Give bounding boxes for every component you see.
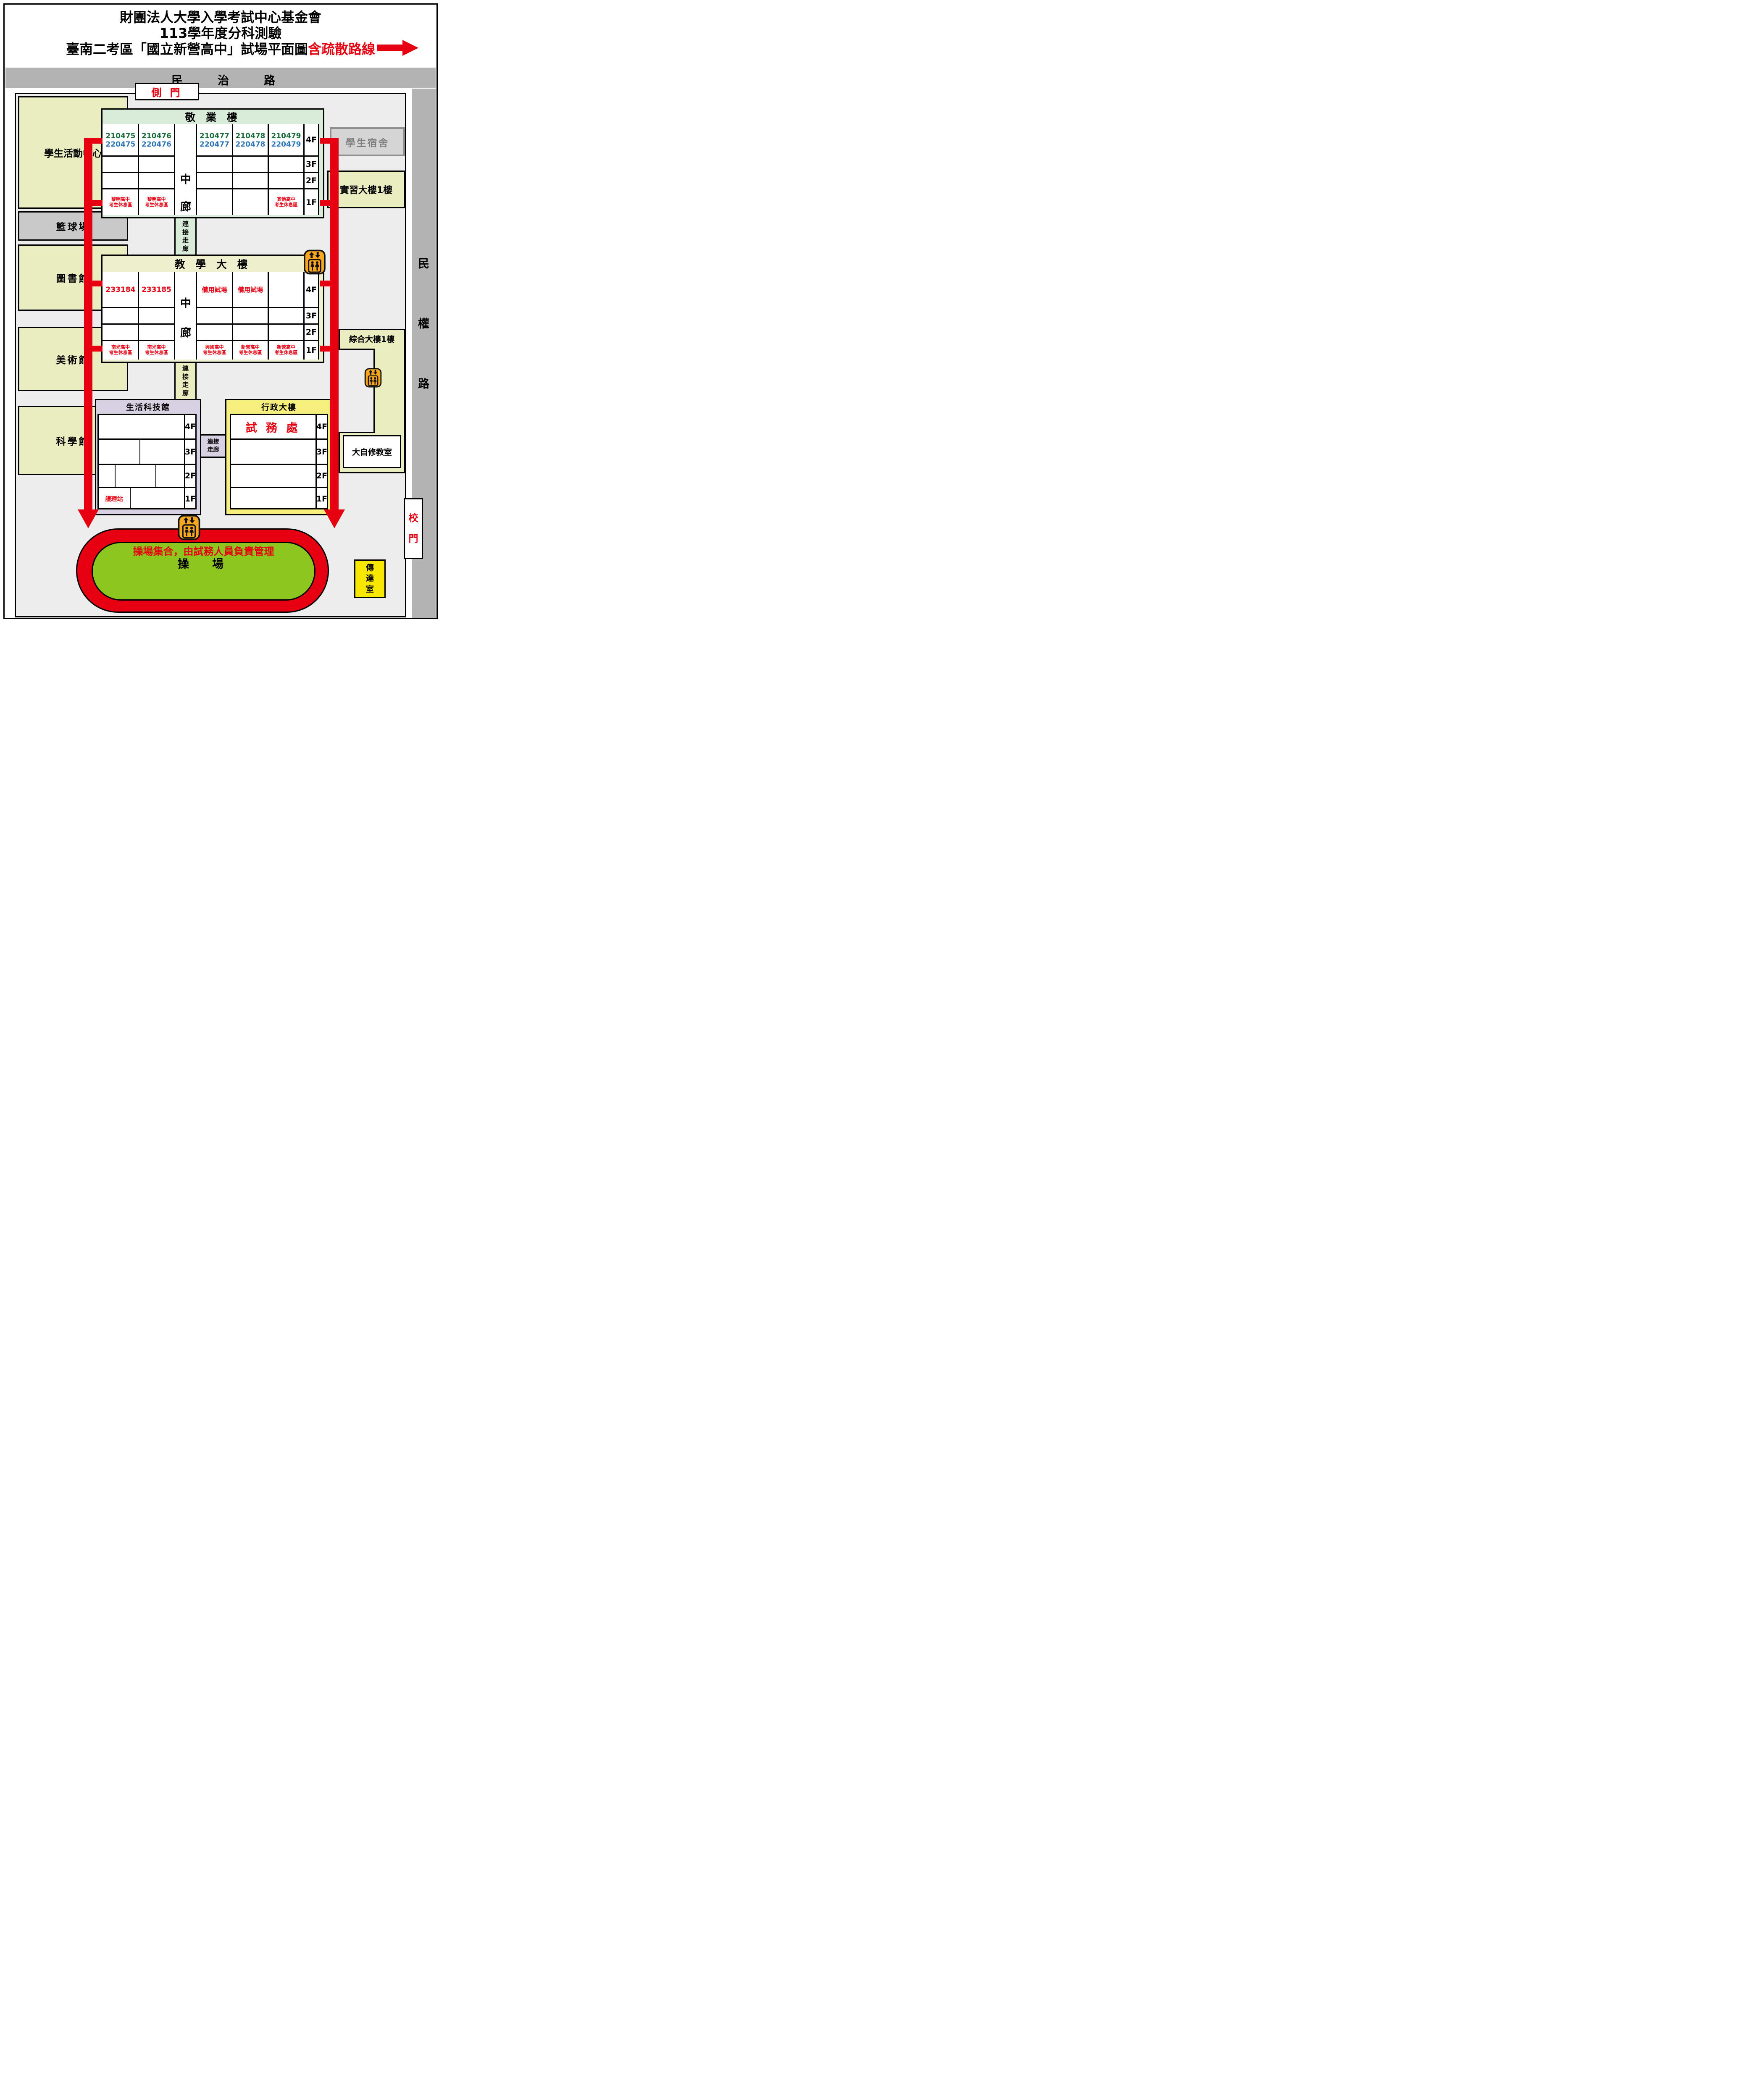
title-line2: 113學年度分科測驗 <box>11 25 431 41</box>
zonghe-title: 綜合大樓1樓 <box>340 331 404 346</box>
jingye-floor-3f: 3F <box>305 157 318 172</box>
jingye-room-1: 210475220475 <box>103 125 138 155</box>
corridor-shenghuo-xingzheng: 連接走廊 <box>201 434 225 458</box>
title-arrow-shaft <box>377 45 402 51</box>
road-minquan-char2: 權 <box>418 315 429 331</box>
evac-stub-jingye-4f-right <box>320 138 339 144</box>
jingye-floor-2f: 2F <box>305 173 318 188</box>
evac-route-left <box>84 138 92 509</box>
evac-stub-jingye-1f-right <box>320 200 339 206</box>
road-minzhi-char2: 治 <box>218 71 229 88</box>
jingye-room-3: 210477220477 <box>197 125 232 155</box>
corridor-jiaoxue-south: 連接走廊 <box>174 363 197 399</box>
jingye-room-5: 210479220479 <box>269 125 303 155</box>
jiaoxue-rest-nanguang-1: 南光高中考生休息區 <box>103 341 138 360</box>
jiaoxue-rest-xingguo: 興國高中考生休息區 <box>197 341 232 360</box>
title-arrow-icon <box>402 40 418 56</box>
jiaoxue-floor-2f: 2F <box>305 325 318 340</box>
building-dormitory: 學生宿舍 <box>330 127 405 156</box>
jiaoxue-floor-1f: 1F <box>305 341 318 360</box>
jiaoxue-backup-room-1: 備用試場 <box>197 273 232 306</box>
building-reception: 傳達室 <box>354 559 386 598</box>
jingye-rest-liming-2: 黎明高中考生休息區 <box>139 189 174 215</box>
evac-stub-jingye-4f-left <box>84 138 103 144</box>
jingye-floor-1f: 1F <box>305 189 318 215</box>
jiaoxue-title: 教 學 大 樓 <box>101 256 324 271</box>
jiaoxue-room-233184: 233184 <box>103 273 138 306</box>
jingye-rest-other: 其他高中考生休息區 <box>269 189 303 215</box>
xingzheng-floor-1f: 1F <box>317 488 327 509</box>
title-line1: 財團法人大學入學考試中心基金會 <box>11 9 431 25</box>
shenghuo-floor-3f: 3F <box>185 440 195 464</box>
map-title: 財團法人大學入學考試中心基金會 113學年度分科測驗 臺南二考區「國立新營高中」… <box>11 9 431 57</box>
evac-route-right <box>330 138 339 509</box>
jingye-room-2: 210476220476 <box>139 125 174 155</box>
road-minzhi: 民 治 路 <box>5 68 436 88</box>
jingye-floor-4f: 4F <box>305 124 318 155</box>
shenghuo-floor-2f: 2F <box>185 465 195 487</box>
jingye-mid-corridor-char2: 廊 <box>180 198 191 214</box>
campus-map: 財團法人大學入學考試中心基金會 113學年度分科測驗 臺南二考區「國立新營高中」… <box>0 0 441 622</box>
jiaoxue-backup-room-2: 備用試場 <box>233 273 268 306</box>
xingzheng-floor-4f: 4F <box>317 415 327 438</box>
elevator-icon <box>178 514 200 541</box>
jiaoxue-mid-corridor-char2: 廊 <box>180 324 191 340</box>
jiaoxue-floor-4f: 4F <box>305 272 318 307</box>
xingzheng-floor-3f: 3F <box>317 440 327 464</box>
shenghuo-nurse-station: 護理站 <box>98 488 130 509</box>
jingye-rest-liming-1: 黎明高中考生休息區 <box>103 189 138 215</box>
xingzheng-exam-office: 試 務 處 <box>231 415 315 438</box>
room-dazixiu: 大自修教室 <box>343 435 401 468</box>
xingzheng-title: 行政大樓 <box>225 400 333 413</box>
jingye-room-4: 210478220478 <box>233 125 268 155</box>
jingye-mid-corridor-char1: 中 <box>180 171 191 186</box>
evac-stub-jiaoxue-4f-left <box>84 281 103 286</box>
road-minquan-char3: 路 <box>418 375 429 391</box>
elevator-icon <box>364 368 382 388</box>
side-gate: 側 門 <box>135 83 199 100</box>
road-minquan-char1: 民 <box>418 255 429 271</box>
shenghuo-floor-4f: 4F <box>185 415 195 438</box>
title-evac-note: 含疏散路線 <box>308 41 375 57</box>
evac-arrowhead-left <box>78 509 99 528</box>
shenghuo-floor-1f: 1F <box>185 488 195 509</box>
evac-stub-jiaoxue-1f-right <box>320 346 339 352</box>
shenghuo-title: 生活科技館 <box>95 400 201 413</box>
road-minzhi-char3: 路 <box>264 71 275 88</box>
track-name: 操 場 <box>92 556 315 569</box>
jiaoxue-floor-3f: 3F <box>305 308 318 323</box>
corridor-jingye-jiaoxue: 連接走廊 <box>174 218 197 255</box>
jiaoxue-rest-xinying-1: 新營高中考生休息區 <box>233 341 268 360</box>
jiaoxue-mid-corridor-char1: 中 <box>180 295 191 310</box>
jiaoxue-rest-xinying-2: 新營高中考生休息區 <box>269 341 303 360</box>
jiaoxue-room-233185: 233185 <box>139 273 174 306</box>
evac-stub-jiaoxue-4f-right <box>320 281 339 286</box>
jiaoxue-rest-nanguang-2: 南光高中考生休息區 <box>139 341 174 360</box>
jingye-title: 敬 業 樓 <box>101 110 324 123</box>
evac-stub-jiaoxue-1f-left <box>84 346 103 352</box>
zonghe-notch <box>339 349 375 433</box>
xingzheng-floor-2f: 2F <box>317 465 327 487</box>
building-shixi: 實習大樓1樓 <box>327 171 405 208</box>
main-gate: 校門 <box>404 498 423 559</box>
evac-arrowhead-right <box>324 509 345 528</box>
elevator-icon <box>303 249 326 275</box>
evac-stub-jingye-1f-left <box>84 200 103 206</box>
title-line3: 臺南二考區「國立新營高中」試場平面圖含疏散路線 <box>11 41 431 57</box>
